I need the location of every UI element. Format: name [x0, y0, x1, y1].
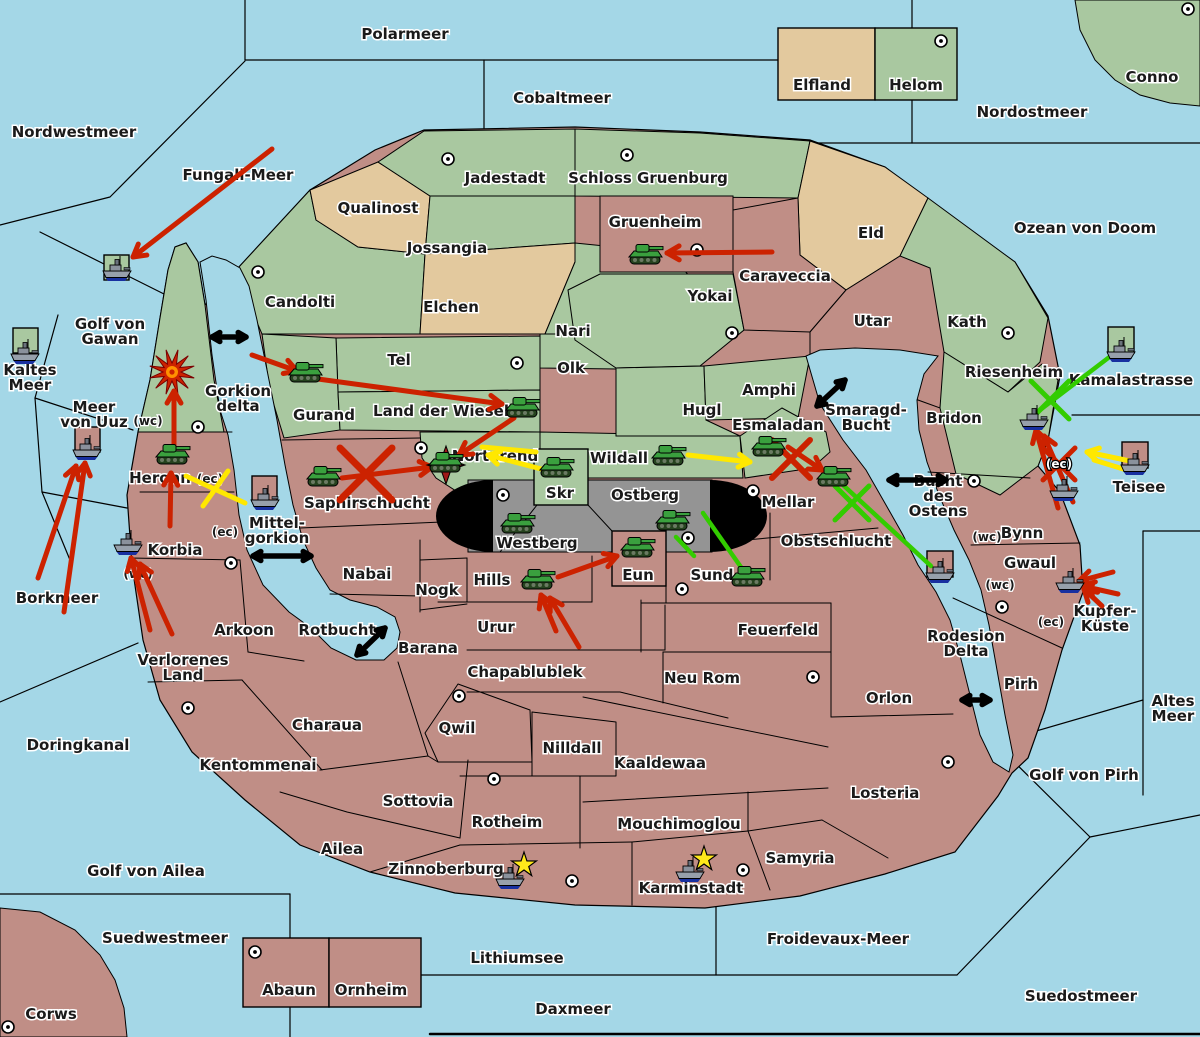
tank-barrel	[327, 469, 341, 472]
arrowhead-barb	[962, 700, 970, 704]
tank-wheel	[748, 580, 752, 584]
supply-center-dot	[972, 479, 976, 483]
label-mittelgorkion: Mittel-gorkion	[245, 514, 310, 547]
tank-barrel	[560, 460, 574, 463]
label-ozean-von-doom: Ozean von Doom	[1014, 219, 1156, 237]
label-olk: Olk	[557, 359, 586, 377]
x-mark-coast-label: (ec)	[1046, 457, 1072, 471]
tank-turret	[508, 514, 521, 522]
label-borkmeer: Borkmeer	[16, 589, 99, 607]
tank-wheel	[433, 466, 437, 470]
ship-gun	[32, 351, 38, 353]
tank-turret	[738, 567, 751, 575]
tank-wheel	[505, 527, 509, 531]
tank-barrel	[521, 516, 535, 519]
ship-hull	[103, 271, 131, 278]
ship-tower	[508, 868, 512, 874]
supply-center-dot	[1186, 7, 1190, 11]
label-lithiumsee: Lithiumsee	[470, 949, 563, 967]
ship-superstructure	[1057, 485, 1068, 491]
tank-wheel	[324, 480, 328, 484]
supply-center-icon	[252, 266, 264, 278]
label-kath: Kath	[947, 313, 987, 331]
label-tel: Tel	[387, 351, 411, 369]
supply-center-dot	[686, 536, 690, 540]
label-qualinost: Qualinost	[338, 199, 419, 217]
label-utar: Utar	[854, 312, 891, 330]
tank-wheel	[841, 480, 845, 484]
tank-wheel	[557, 471, 561, 475]
supply-center-dot	[680, 587, 684, 591]
ship-tower	[126, 534, 130, 540]
label-caraveccia: Caraveccia	[739, 267, 831, 285]
ship-superstructure	[258, 494, 269, 500]
supply-center-icon	[935, 35, 947, 47]
label-sund: Sund	[691, 566, 734, 584]
coast-label: (wc)	[985, 578, 1014, 592]
tank-wheel	[653, 258, 657, 262]
arrowhead-barb	[1033, 430, 1036, 444]
supply-center-icon	[1002, 327, 1014, 339]
label-hills: Hills	[474, 571, 511, 589]
tank-barrel	[772, 439, 786, 442]
supply-center-icon	[621, 149, 633, 161]
tank-wheel	[742, 580, 746, 584]
arrowhead-barb	[836, 380, 845, 382]
label-rotbucht: Rotbucht	[298, 621, 375, 639]
ship-gun	[272, 497, 278, 499]
map-canvas: PolarmeerCobaltmeerNordwestmeerFungali-M…	[0, 0, 1200, 1037]
label-losteria: Losteria	[851, 784, 920, 802]
label-hugl: Hugl	[682, 401, 721, 419]
label-chapablublek: Chapablublek	[467, 663, 583, 681]
tank-wheel	[544, 471, 548, 475]
tank-wheel	[525, 583, 529, 587]
ship-gun	[124, 268, 130, 270]
ship-tower	[1062, 480, 1066, 486]
label-heronn: Heronn	[129, 469, 191, 487]
label-wildall: Wildall	[590, 449, 648, 467]
supply-center-dot	[515, 361, 519, 365]
game-map-root: PolarmeerCobaltmeerNordwestmeerFungali-M…	[0, 0, 1200, 1037]
tank-wheel	[564, 471, 568, 475]
supply-center-icon	[737, 864, 749, 876]
label-kaaldewaa: Kaaldewaa	[614, 754, 706, 772]
tank-wheel	[756, 450, 760, 454]
supply-center-icon	[566, 875, 578, 887]
label-golf-von-ailea: Golf von Ailea	[87, 862, 205, 880]
tank-wheel	[663, 459, 667, 463]
ship-hull	[1020, 420, 1048, 427]
label-bynn: Bynn	[1001, 524, 1044, 542]
explosion-core	[169, 369, 174, 374]
label-eld: Eld	[858, 224, 884, 242]
supply-center-dot	[1006, 331, 1010, 335]
tank-wheel	[676, 459, 680, 463]
ship-superstructure	[1128, 459, 1139, 465]
label-obstschlucht: Obstschlucht	[781, 532, 892, 550]
label-mouchimoglou: Mouchimoglou	[617, 815, 740, 833]
label-candolti: Candolti	[265, 293, 335, 311]
ship-superstructure	[110, 265, 121, 271]
supply-center-dot	[625, 153, 629, 157]
supply-center-icon	[942, 756, 954, 768]
label-arkoon: Arkoon	[214, 621, 274, 639]
supply-center-icon	[747, 485, 759, 497]
label-rotheim: Rotheim	[472, 813, 543, 831]
tank-turret	[628, 538, 641, 546]
region-schloss-gruenburg	[575, 129, 810, 198]
tank-wheel	[313, 376, 317, 380]
supply-center-dot	[253, 950, 257, 954]
label-jadestadt: Jadestadt	[464, 169, 546, 187]
tank-turret	[513, 398, 526, 406]
tank-wheel	[331, 480, 335, 484]
label-nordwestmeer: Nordwestmeer	[12, 123, 137, 141]
tank-wheel	[735, 580, 739, 584]
ship-tower	[23, 343, 27, 349]
label-gurand: Gurand	[293, 406, 355, 424]
supply-center-dot	[446, 157, 450, 161]
tank-wheel	[538, 583, 542, 587]
ship-hull	[676, 872, 704, 879]
ship-hull	[926, 573, 954, 580]
supply-center-dot	[501, 493, 505, 497]
tank-wheel	[167, 458, 171, 462]
tank-turret	[636, 245, 649, 253]
ship-superstructure	[503, 873, 514, 879]
tank-wheel	[645, 551, 649, 555]
label-abaun: Abaun	[262, 981, 316, 999]
tank-barrel	[676, 513, 690, 516]
tank-wheel	[530, 411, 534, 415]
tank-turret	[663, 511, 676, 519]
label-qwil: Qwil	[439, 719, 476, 737]
ship-hull	[251, 500, 279, 507]
label-mellar: Mellar	[762, 493, 816, 511]
region-gruenheim	[600, 196, 733, 272]
tank-wheel	[834, 480, 838, 484]
tank-wheel	[828, 480, 832, 484]
ship-superstructure	[18, 348, 29, 354]
supply-center-icon	[726, 327, 738, 339]
arrowhead-barb	[603, 553, 617, 556]
label-froidevaux-meer: Froidevaux-Meer	[767, 930, 910, 948]
ship-superstructure	[683, 866, 694, 872]
tank-barrel	[309, 365, 323, 368]
arrowhead-barb	[253, 556, 261, 560]
tank-turret	[547, 458, 560, 466]
tank-wheel	[638, 551, 642, 555]
ship-hull	[1050, 491, 1078, 498]
tank-wheel	[446, 466, 450, 470]
arrowhead-barb	[376, 628, 385, 630]
ship-superstructure	[933, 567, 944, 573]
tank-wheel	[517, 411, 521, 415]
label-helom: Helom	[889, 76, 943, 94]
supply-center-dot	[256, 270, 260, 274]
tank-wheel	[551, 471, 555, 475]
arrowhead-barb	[133, 255, 147, 257]
supply-center-dot	[1000, 605, 1004, 609]
supply-center-icon	[488, 773, 500, 785]
tank-wheel	[680, 524, 684, 528]
tank-wheel	[453, 466, 457, 470]
tank-wheel	[173, 458, 177, 462]
supply-center-icon	[996, 601, 1008, 613]
tank-turret	[528, 570, 541, 578]
arrowhead-barb	[357, 653, 366, 655]
label-eun: Eun	[622, 566, 654, 584]
tank-wheel	[518, 527, 522, 531]
arrowhead-barb	[889, 480, 897, 484]
supply-center-icon	[249, 946, 261, 958]
coast-label: (wc)	[972, 530, 1001, 544]
label-polarmeer: Polarmeer	[361, 25, 449, 43]
tank-wheel	[532, 583, 536, 587]
label-feuerfeld: Feuerfeld	[738, 621, 819, 639]
label-teisee: Teisee	[1113, 478, 1166, 496]
label-neu-rom: Neu Rom	[664, 669, 740, 687]
tank-turret	[759, 437, 772, 445]
label-ornheim: Ornheim	[335, 981, 407, 999]
ship-superstructure	[80, 444, 91, 450]
supply-center-icon	[182, 702, 194, 714]
supply-center-dot	[939, 39, 943, 43]
supply-center-dot	[186, 706, 190, 710]
tank-turret	[314, 467, 327, 475]
supply-center-dot	[457, 694, 461, 698]
label-charaua: Charaua	[292, 716, 362, 734]
arrowhead-barb	[127, 558, 131, 572]
supply-center-dot	[730, 331, 734, 335]
supply-center-dot	[196, 425, 200, 429]
supply-center-icon	[2, 1021, 14, 1033]
attack-line	[170, 473, 171, 526]
tank-wheel	[306, 376, 310, 380]
label-riesenheim: Riesenheim	[965, 363, 1063, 381]
supply-center-dot	[946, 760, 950, 764]
label-urur: Urur	[477, 618, 515, 636]
tank-wheel	[625, 551, 629, 555]
supply-center-dot	[6, 1025, 10, 1029]
tank-turret	[163, 445, 176, 453]
label-saphirschlucht: Saphirschlucht	[304, 494, 430, 512]
tank-barrel	[449, 455, 463, 458]
label-corws: Corws	[25, 1005, 77, 1023]
supply-center-icon	[968, 475, 980, 487]
ship-hull	[114, 545, 142, 552]
label-kupfer-kueste: Kupfer-Küste	[1073, 602, 1136, 635]
tank-wheel	[667, 524, 671, 528]
tank-barrel	[672, 448, 686, 451]
label-cobaltmeer: Cobaltmeer	[513, 89, 611, 107]
label-doringkanal: Doringkanal	[27, 736, 130, 754]
tank-turret	[436, 453, 449, 461]
ship-tower	[938, 562, 942, 568]
label-bridon: Bridon	[926, 409, 982, 427]
tank-turret	[824, 467, 837, 475]
label-nogk: Nogk	[415, 581, 460, 599]
label-golf-von-pirh: Golf von Pirh	[1029, 766, 1139, 784]
supply-center-dot	[419, 446, 423, 450]
supply-center-icon	[511, 357, 523, 369]
arrowhead-barb	[539, 595, 541, 609]
ship-gun	[135, 542, 141, 544]
ship-hull	[496, 879, 524, 886]
label-amphi: Amphi	[742, 381, 796, 399]
coast-label: (ec)	[1038, 615, 1064, 629]
coast-label: (ec)	[212, 525, 238, 539]
label-pirh: Pirh	[1004, 675, 1038, 693]
supply-center-dot	[811, 675, 815, 679]
tank-wheel	[318, 480, 322, 484]
tank-wheel	[673, 524, 677, 528]
tank-wheel	[311, 480, 315, 484]
supply-center-dot	[751, 489, 755, 493]
tank-wheel	[160, 458, 164, 462]
tank-wheel	[821, 480, 825, 484]
label-ailea: Ailea	[321, 840, 363, 858]
label-golf-von-gawan: Golf vonGawan	[75, 315, 145, 348]
ship-gun	[94, 447, 100, 449]
supply-center-icon	[453, 690, 465, 702]
tank-wheel	[646, 258, 650, 262]
label-yokai: Yokai	[686, 287, 732, 305]
supply-center-icon	[676, 583, 688, 595]
supply-center-icon	[192, 421, 204, 433]
supply-center-dot	[492, 777, 496, 781]
ship-tower	[1032, 409, 1036, 415]
label-ostberg: Ostberg	[611, 486, 679, 504]
tank-wheel	[300, 376, 304, 380]
tank-wheel	[656, 459, 660, 463]
tank-barrel	[526, 400, 540, 403]
label-kentommenai: Kentommenai	[199, 756, 316, 774]
label-conno: Conno	[1126, 68, 1179, 86]
tank-barrel	[641, 540, 655, 543]
ship-gun	[1142, 462, 1148, 464]
attack-line	[667, 252, 772, 253]
tank-wheel	[293, 376, 297, 380]
ship-superstructure	[121, 539, 132, 545]
arrowhead-barb	[139, 564, 140, 578]
tank-wheel	[523, 411, 527, 415]
arrowhead-barb	[982, 696, 990, 700]
ship-hull	[1121, 465, 1149, 472]
tank-wheel	[633, 258, 637, 262]
label-zinnoberburg: Zinnoberburg	[388, 860, 504, 878]
label-nari: Nari	[555, 322, 590, 340]
label-samyria: Samyria	[766, 849, 835, 867]
ship-gun	[1128, 349, 1134, 351]
tank-wheel	[632, 551, 636, 555]
label-altes-meer: AltesMeer	[1151, 692, 1194, 725]
ship-superstructure	[1114, 346, 1125, 352]
tank-wheel	[545, 583, 549, 587]
supply-center-dot	[229, 561, 233, 565]
supply-center-dot	[741, 868, 745, 872]
ship-tower	[1068, 572, 1072, 578]
supply-center-icon	[442, 153, 454, 165]
ship-tower	[1119, 341, 1123, 347]
arrowhead-barb	[212, 337, 220, 341]
tank-wheel	[669, 459, 673, 463]
label-gruenheim: Gruenheim	[609, 213, 702, 231]
label-skr: Skr	[546, 484, 575, 502]
label-barana: Barana	[398, 639, 458, 657]
tank-barrel	[176, 447, 190, 450]
arrowhead-barb	[303, 552, 311, 556]
label-nilldall: Nilldall	[542, 739, 601, 757]
ship-gun	[947, 570, 953, 572]
supply-center-icon	[497, 489, 509, 501]
label-nordostmeer: Nordostmeer	[977, 103, 1088, 121]
supply-center-icon	[1182, 3, 1194, 15]
ship-tower	[85, 439, 89, 445]
tank-wheel	[510, 411, 514, 415]
tank-wheel	[180, 458, 184, 462]
supply-center-icon	[225, 557, 237, 569]
ship-superstructure	[1063, 577, 1074, 583]
label-westberg: Westberg	[496, 534, 577, 552]
ship-gun	[1071, 488, 1077, 490]
label-elfland: Elfland	[793, 76, 851, 94]
label-jossangia: Jossangia	[406, 239, 488, 257]
label-suedwestmeer: Suedwestmeer	[102, 929, 228, 947]
label-nabai: Nabai	[343, 565, 392, 583]
label-suedostmeer: Suedostmeer	[1025, 987, 1138, 1005]
label-esmaladan: Esmaladan	[732, 416, 824, 434]
arrowhead-barb	[938, 476, 946, 480]
ship-tower	[1133, 454, 1137, 460]
ship-tower	[115, 260, 119, 266]
ship-hull	[11, 354, 39, 361]
arrowhead-barb	[238, 333, 246, 337]
tank-wheel	[755, 580, 759, 584]
ship-superstructure	[1027, 414, 1038, 420]
coast-label: (wc)	[133, 414, 162, 428]
tank-wheel	[763, 450, 767, 454]
supply-center-icon	[807, 671, 819, 683]
label-gwaul: Gwaul	[1004, 554, 1056, 572]
label-sottovia: Sottovia	[383, 792, 454, 810]
label-elchen: Elchen	[423, 298, 479, 316]
supply-center-dot	[570, 879, 574, 883]
tank-barrel	[751, 569, 765, 572]
label-daxmeer: Daxmeer	[535, 1000, 611, 1018]
tank-wheel	[640, 258, 644, 262]
ship-gun	[1041, 417, 1047, 419]
supply-center-icon	[415, 442, 427, 454]
tank-wheel	[660, 524, 664, 528]
label-korbia: Korbia	[147, 541, 202, 559]
tank-wheel	[769, 450, 773, 454]
ship-hull	[73, 450, 101, 457]
label-kaltes-meer: KaltesMeer	[3, 361, 56, 394]
label-schloss-gruenburg: Schloss Gruenburg	[568, 169, 728, 187]
tank-wheel	[776, 450, 780, 454]
ship-tower	[263, 489, 267, 495]
ship-tower	[688, 861, 692, 867]
ship-hull	[1056, 583, 1084, 590]
ship-hull	[1107, 352, 1135, 359]
tank-wheel	[440, 466, 444, 470]
tank-wheel	[525, 527, 529, 531]
tank-barrel	[541, 572, 555, 575]
tank-barrel	[837, 469, 851, 472]
tank-wheel	[512, 527, 516, 531]
